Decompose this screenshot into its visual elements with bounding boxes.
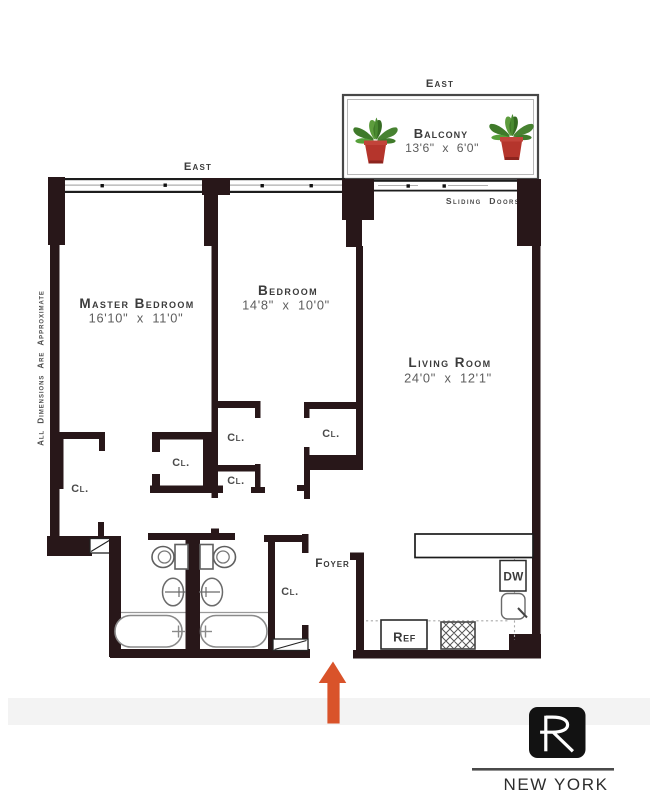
svg-text:Bedroom: Bedroom (258, 283, 318, 298)
svg-text:East: East (426, 78, 454, 90)
svg-text:Balcony: Balcony (414, 126, 468, 141)
svg-text:13'6" x 6'0": 13'6" x 6'0" (405, 141, 479, 155)
svg-text:Ref: Ref (393, 630, 416, 645)
svg-text:Cl.: Cl. (71, 483, 88, 495)
svg-text:Cl.: Cl. (172, 457, 189, 469)
svg-text:Foyer: Foyer (315, 556, 349, 570)
svg-text:Master Bedroom: Master Bedroom (79, 296, 194, 311)
svg-text:Cl.: Cl. (227, 432, 244, 444)
svg-text:16'10" x 11'0": 16'10" x 11'0" (89, 311, 184, 326)
svg-text:24'0" x 12'1": 24'0" x 12'1" (404, 371, 492, 386)
svg-text:East: East (184, 161, 212, 173)
svg-text:Sliding Doors: Sliding Doors (446, 196, 520, 206)
svg-text:All Dimensions Are Approxim: All Dimensions Are Approximate (37, 290, 46, 446)
svg-text:Cl.: Cl. (322, 428, 339, 440)
svg-text:Cl.: Cl. (281, 586, 298, 598)
svg-text:DW: DW (503, 570, 524, 584)
svg-text:Living Room: Living Room (408, 355, 491, 370)
svg-text:14'8" x 10'0": 14'8" x 10'0" (242, 298, 330, 313)
svg-text:NEW YORK: NEW YORK (503, 775, 608, 794)
svg-text:Cl.: Cl. (227, 475, 244, 487)
